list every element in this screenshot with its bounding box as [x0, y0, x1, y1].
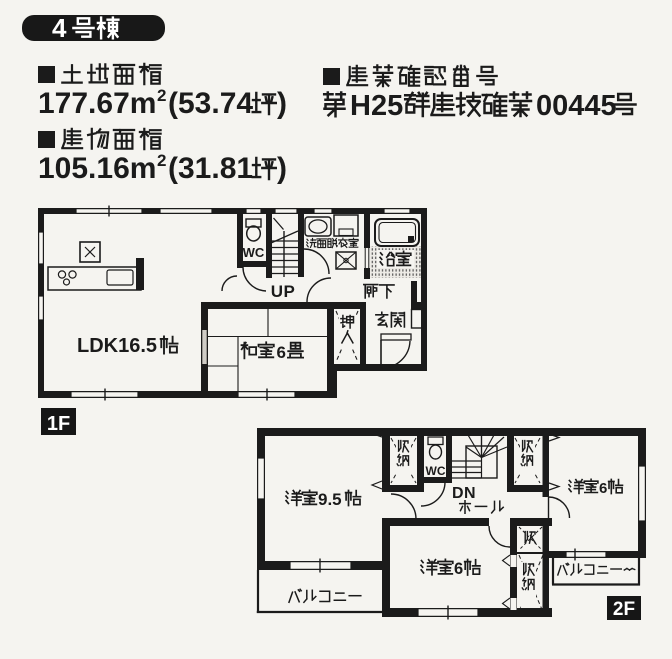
svg-text:WC: WC — [243, 245, 265, 260]
svg-text:6: 6 — [599, 480, 607, 497]
svg-text:UP: UP — [271, 282, 296, 301]
svg-text:177.67m: 177.67m — [38, 87, 156, 120]
svg-text:(31.81: (31.81 — [168, 152, 253, 185]
svg-text:6: 6 — [454, 560, 463, 578]
svg-text:): ) — [277, 152, 287, 185]
svg-text:DN: DN — [452, 485, 476, 502]
svg-text:4: 4 — [52, 13, 67, 43]
svg-text:(53.74: (53.74 — [168, 87, 253, 120]
svg-text:1F: 1F — [47, 413, 70, 435]
svg-text:H25: H25 — [350, 90, 403, 122]
svg-text:105.16m: 105.16m — [38, 152, 156, 185]
svg-text:LDK16.5: LDK16.5 — [77, 335, 157, 357]
svg-text:00445: 00445 — [536, 90, 617, 122]
svg-text:WC: WC — [426, 464, 446, 478]
svg-text:2: 2 — [157, 151, 166, 170]
svg-text:2F: 2F — [613, 599, 635, 620]
svg-text:9.5: 9.5 — [318, 490, 342, 509]
svg-text:6: 6 — [277, 343, 286, 362]
svg-text:2: 2 — [157, 86, 166, 105]
svg-text:): ) — [277, 87, 287, 120]
